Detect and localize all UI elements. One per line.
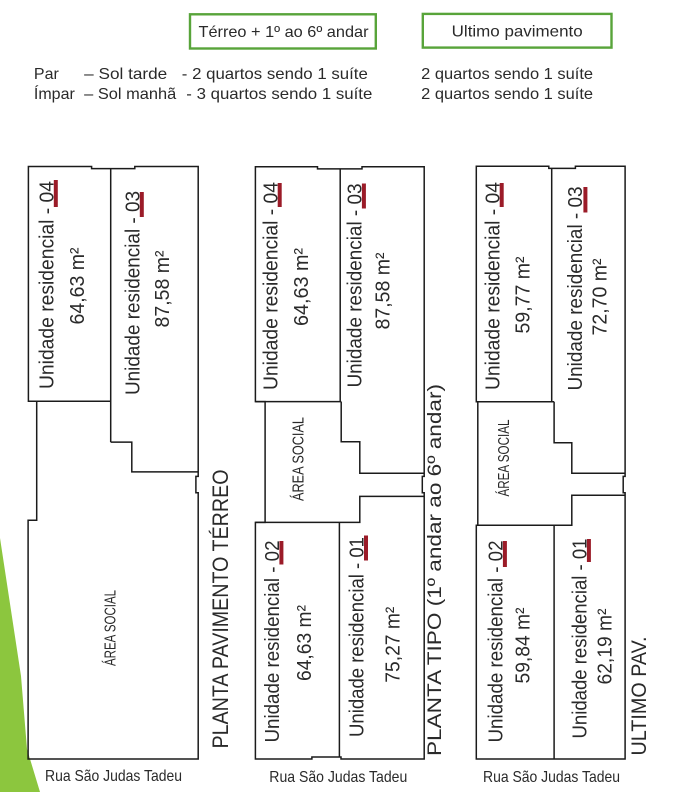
svg-text:Unidade residencial - 03: Unidade residencial - 03 xyxy=(564,187,587,391)
svg-text:2 quartos sendo 1 suíte: 2 quartos sendo 1 suíte xyxy=(421,66,593,83)
svg-text:Unidade residencial - 02: Unidade residencial - 02 xyxy=(485,541,508,743)
svg-text:75,27 m²: 75,27 m² xyxy=(382,607,405,683)
svg-text:Ultimo pavimento: Ultimo pavimento xyxy=(452,23,583,40)
svg-text:- 2 quartos sendo 1 suíte: - 2 quartos sendo 1 suíte xyxy=(182,66,368,83)
svg-text:64,63 m²: 64,63 m² xyxy=(66,247,89,324)
svg-text:87,58 m²: 87,58 m² xyxy=(151,250,174,327)
svg-text:Unidade residencial - 02: Unidade residencial - 02 xyxy=(261,541,284,743)
svg-text:PLANTA TIPO (1º andar ao 6º an: PLANTA TIPO (1º andar ao 6º andar) xyxy=(425,384,446,756)
svg-text:Rua São Judas Tadeu: Rua São Judas Tadeu xyxy=(269,769,407,786)
svg-text:- 3 quartos sendo 1 suíte: - 3 quartos sendo 1 suíte xyxy=(186,86,372,103)
svg-text:Unidade residencial - 04: Unidade residencial - 04 xyxy=(259,182,282,390)
svg-text:PLANTA PAVIMENTO TÉRREO: PLANTA PAVIMENTO TÉRREO xyxy=(208,470,233,749)
svg-text:ÁREA SOCIAL: ÁREA SOCIAL xyxy=(289,417,308,501)
svg-text:64,63 m²: 64,63 m² xyxy=(290,248,313,326)
svg-text:Unidade residencial - 03: Unidade residencial - 03 xyxy=(122,191,145,395)
svg-text:59,84 m²: 59,84 m² xyxy=(511,607,534,683)
svg-text:62,19 m²: 62,19 m² xyxy=(594,608,617,684)
svg-text:64,63 m²: 64,63 m² xyxy=(293,605,316,681)
svg-text:59,77 m²: 59,77 m² xyxy=(511,256,534,333)
svg-text:Térreo + 1º ao 6º andar: Térreo + 1º ao 6º andar xyxy=(199,24,370,41)
svg-text:Unidade residencial - 03: Unidade residencial - 03 xyxy=(344,184,367,388)
svg-text:ULTIMO PAV.: ULTIMO PAV. xyxy=(628,637,651,756)
svg-text:Unidade residencial - 01: Unidade residencial - 01 xyxy=(569,539,592,739)
svg-text:Ímpar: Ímpar xyxy=(34,84,76,103)
svg-text:Unidade residencial - 01: Unidade residencial - 01 xyxy=(346,537,369,737)
svg-text:ÁREA SOCIAL: ÁREA SOCIAL xyxy=(494,419,513,496)
svg-text:Rua São Judas Tadeu: Rua São Judas Tadeu xyxy=(45,768,182,785)
svg-text:72,70 m²: 72,70 m² xyxy=(589,258,612,335)
svg-text:87,58 m²: 87,58 m² xyxy=(372,252,395,329)
svg-text:Unidade residencial - 04: Unidade residencial - 04 xyxy=(36,181,59,389)
svg-text:– Sol manhã: – Sol manhã xyxy=(84,86,176,103)
svg-text:Unidade residencial - 04: Unidade residencial - 04 xyxy=(481,182,504,390)
svg-text:ÁREA SOCIAL: ÁREA SOCIAL xyxy=(101,590,120,666)
svg-text:Par: Par xyxy=(34,66,60,83)
svg-text:Rua São Judas Tadeu: Rua São Judas Tadeu xyxy=(483,769,620,786)
svg-text:2 quartos sendo 1 suíte: 2 quartos sendo 1 suíte xyxy=(421,86,593,103)
svg-text:– Sol tarde: – Sol tarde xyxy=(84,66,167,83)
